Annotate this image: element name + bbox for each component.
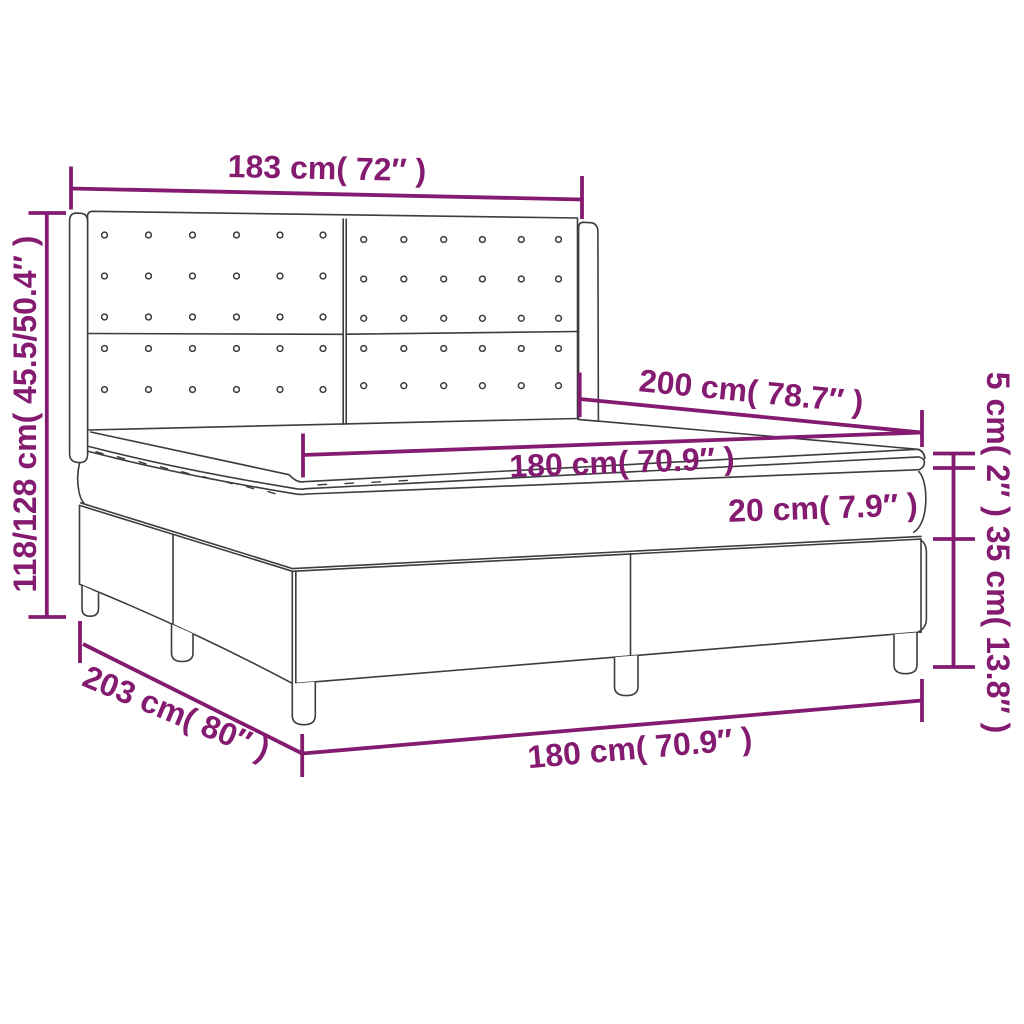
svg-text:203 cm( 80″ ): 203 cm( 80″ ) (78, 658, 275, 767)
svg-text:200 cm( 78.7″ ): 200 cm( 78.7″ ) (637, 362, 865, 420)
svg-text:5 cm( 2″ ) 35 cm( 13.8″ ): 5 cm( 2″ ) 35 cm( 13.8″ ) (980, 372, 1016, 733)
svg-text:180 cm( 70.9″ ): 180 cm( 70.9″ ) (526, 720, 753, 775)
svg-text:20 cm( 7.9″ ): 20 cm( 7.9″ ) (728, 486, 919, 529)
svg-text:118/128 cm( 45.5/50.4″ ): 118/128 cm( 45.5/50.4″ ) (7, 236, 43, 593)
svg-text:183 cm( 72″ ): 183 cm( 72″ ) (227, 148, 426, 188)
